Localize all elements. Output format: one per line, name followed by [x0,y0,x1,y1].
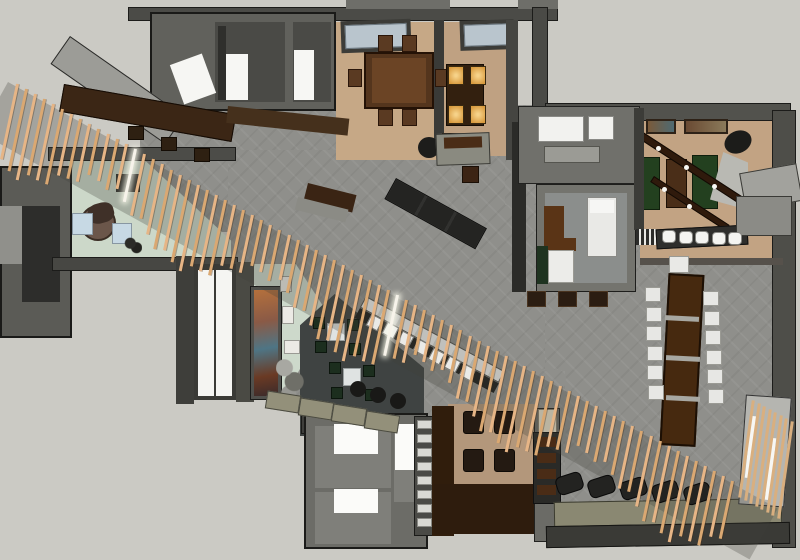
bar-back-rack [636,229,656,245]
room-topleft-counter [218,26,226,100]
sunken-lounge-surround [434,484,538,534]
stair-tread [417,476,432,485]
communal-chair-left [646,307,662,322]
floor-plan-stage [0,0,800,560]
beam-light-dot [712,184,717,189]
stair-tread [417,490,432,499]
office-stool [527,291,546,307]
seat-blue [72,213,93,235]
communal-head-chair [669,256,689,273]
communal-chair-left [646,326,662,341]
bar-stool-white [679,231,693,244]
bar-stool-white [695,231,709,244]
door-white [294,50,314,100]
beam-light-dot [662,187,667,192]
picture-frame [646,119,676,134]
communal-chair-left [647,346,663,361]
wine-bottle-row [537,469,556,479]
communal-chair-right [703,291,719,306]
step-booth-bottom [640,258,783,265]
chair-wood [462,166,479,183]
door-white-left [198,270,214,396]
picture-frame [684,119,728,134]
wine-bottle-row [537,453,556,463]
door-white [226,54,248,100]
armchair-dark [463,449,484,472]
pouf-black [390,393,406,409]
communal-chair-right [704,311,720,326]
office-table-pillow [590,200,614,213]
office-stool [558,291,577,307]
window-white [588,116,614,140]
dining-chair [378,35,393,52]
artwall-mural [254,290,278,396]
stair-tread [417,420,432,429]
exterior-mask [194,400,306,560]
beam-light-dot [684,165,689,170]
amber-chair [448,66,464,85]
communal-chair-right [708,389,724,404]
office-stool [589,291,608,307]
window-white [538,116,584,142]
dining-table-six-top [372,58,426,103]
amber-chair [470,66,486,85]
amber-chair [470,105,486,124]
cafe-table-dark [128,126,144,140]
skylight-glass [464,23,511,47]
cafe-table-dark [194,148,210,162]
communal-chair-left [648,385,664,400]
communal-chair-left [647,365,663,380]
office-green-strip [537,246,548,284]
terrace-block [736,196,792,236]
amber-chair [448,105,464,124]
bar-stool-white [712,232,726,245]
dining-chair [402,35,417,52]
stair-tread [417,434,432,443]
communal-chair-right [705,330,721,345]
beam-light-dot [687,204,692,209]
cafe-table-dark [161,137,177,151]
lounge-chair-green [363,365,375,377]
communal-chair-left [645,287,661,302]
pouf-black [350,381,366,397]
restroom-door-white [334,489,378,513]
door-white-left [216,270,232,396]
office-couch-white [548,250,574,283]
porch-door [22,206,60,302]
beam-light-dot [656,146,661,151]
stair-tread [417,504,432,513]
service-counter-items [444,136,482,148]
lounge-chair-green [331,387,343,399]
bar-stool-white [662,230,676,243]
stair-tread [417,448,432,457]
bar-stool-white [728,232,742,245]
wine-bottle-row [537,485,556,495]
stair-tread [417,462,432,471]
wall-booth-left [634,108,644,230]
wall-top-nub [346,0,450,9]
communal-chair-right [706,350,722,365]
armchair-dark [494,449,515,472]
stair-tread [417,518,432,527]
plant [124,236,142,254]
skylight-glass [345,23,408,49]
dining-chair [402,109,417,126]
pouf-black [370,387,386,403]
bench-white [282,306,294,324]
room-counter [544,146,600,163]
lounge-chair-green [315,341,327,353]
bench-white [284,340,300,354]
dining-chair [348,69,362,87]
communal-chair-right [707,369,723,384]
wall-left-mid [176,256,194,404]
dining-chair [378,109,393,126]
lounge-chair-green [329,362,341,374]
